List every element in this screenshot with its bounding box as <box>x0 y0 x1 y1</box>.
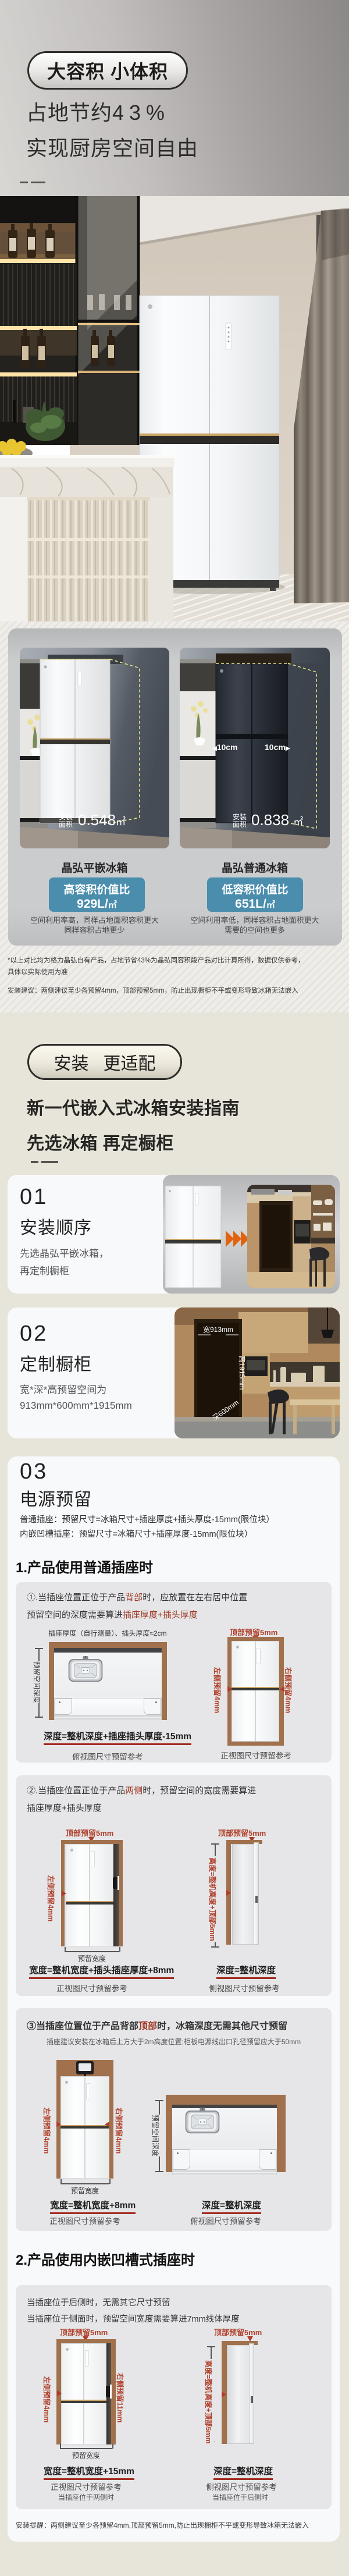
svg-text:宽913mm: 宽913mm <box>203 1325 233 1334</box>
svg-text:高1915mm: 高1915mm <box>238 1356 247 1390</box>
